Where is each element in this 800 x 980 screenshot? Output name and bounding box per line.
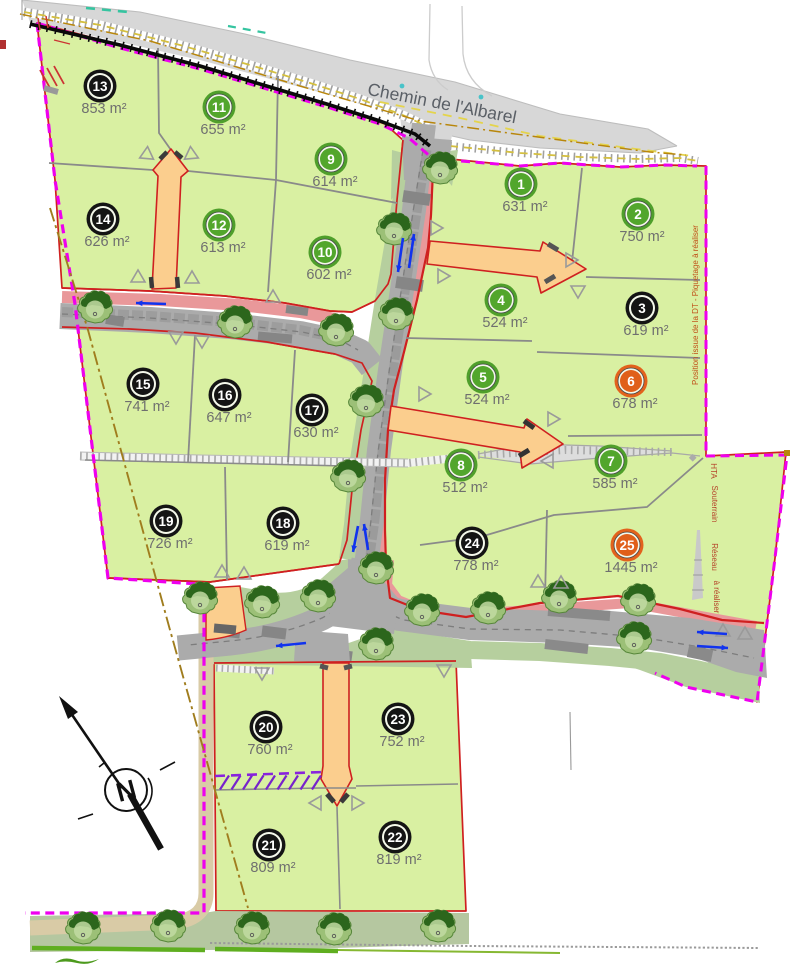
svg-text:524 m²: 524 m²	[464, 392, 509, 408]
svg-text:3: 3	[638, 301, 646, 316]
svg-text:21: 21	[261, 838, 277, 853]
svg-text:809 m²: 809 m²	[250, 860, 295, 876]
svg-text:Position issue de la DT - Piqu: Position issue de la DT - Piquetage à ré…	[691, 225, 700, 385]
svg-text:614 m²: 614 m²	[312, 174, 357, 190]
svg-text:1445 m²: 1445 m²	[604, 560, 657, 576]
svg-text:Souterrain: Souterrain	[710, 486, 719, 523]
svg-text:655 m²: 655 m²	[200, 122, 245, 138]
svg-text:22: 22	[387, 830, 402, 845]
svg-text:524 m²: 524 m²	[482, 315, 527, 331]
svg-text:Réseau: Réseau	[710, 543, 719, 571]
svg-text:4: 4	[497, 293, 505, 308]
svg-text:8: 8	[457, 458, 465, 473]
svg-text:à réaliser: à réaliser	[712, 581, 721, 614]
svg-text:11: 11	[212, 100, 227, 115]
svg-text:HTA: HTA	[709, 463, 718, 479]
svg-text:15: 15	[135, 377, 151, 392]
svg-text:630 m²: 630 m²	[293, 425, 338, 441]
svg-text:752 m²: 752 m²	[379, 734, 424, 750]
svg-text:13: 13	[92, 79, 108, 94]
svg-text:750 m²: 750 m²	[619, 229, 664, 245]
svg-text:647 m²: 647 m²	[206, 410, 251, 426]
svg-text:760 m²: 760 m²	[247, 742, 292, 758]
svg-text:14: 14	[95, 212, 111, 227]
svg-text:678 m²: 678 m²	[612, 396, 657, 412]
svg-text:585 m²: 585 m²	[592, 476, 637, 492]
svg-text:1: 1	[517, 177, 525, 192]
svg-text:741 m²: 741 m²	[124, 399, 169, 415]
svg-text:853 m²: 853 m²	[81, 101, 126, 117]
svg-text:24: 24	[464, 536, 480, 551]
svg-text:512 m²: 512 m²	[442, 480, 487, 496]
svg-text:16: 16	[217, 388, 233, 403]
svg-text:819 m²: 819 m²	[376, 852, 421, 868]
svg-text:7: 7	[607, 454, 615, 469]
svg-text:2: 2	[634, 207, 642, 222]
svg-text:23: 23	[390, 712, 406, 727]
svg-text:631 m²: 631 m²	[502, 199, 547, 215]
svg-text:5: 5	[479, 370, 487, 385]
svg-text:619 m²: 619 m²	[623, 323, 668, 339]
svg-text:726 m²: 726 m²	[147, 536, 192, 552]
svg-text:12: 12	[211, 218, 226, 233]
svg-text:20: 20	[258, 720, 273, 735]
svg-text:602 m²: 602 m²	[306, 267, 351, 283]
svg-text:18: 18	[275, 516, 291, 531]
svg-text:613 m²: 613 m²	[200, 240, 245, 256]
svg-text:17: 17	[304, 403, 319, 418]
svg-text:6: 6	[627, 374, 635, 389]
svg-text:9: 9	[327, 152, 335, 167]
svg-text:19: 19	[158, 514, 173, 529]
svg-text:778 m²: 778 m²	[453, 558, 498, 574]
svg-text:10: 10	[317, 245, 332, 260]
svg-text:626 m²: 626 m²	[84, 234, 129, 250]
svg-text:619 m²: 619 m²	[264, 538, 309, 554]
svg-text:25: 25	[619, 538, 635, 553]
